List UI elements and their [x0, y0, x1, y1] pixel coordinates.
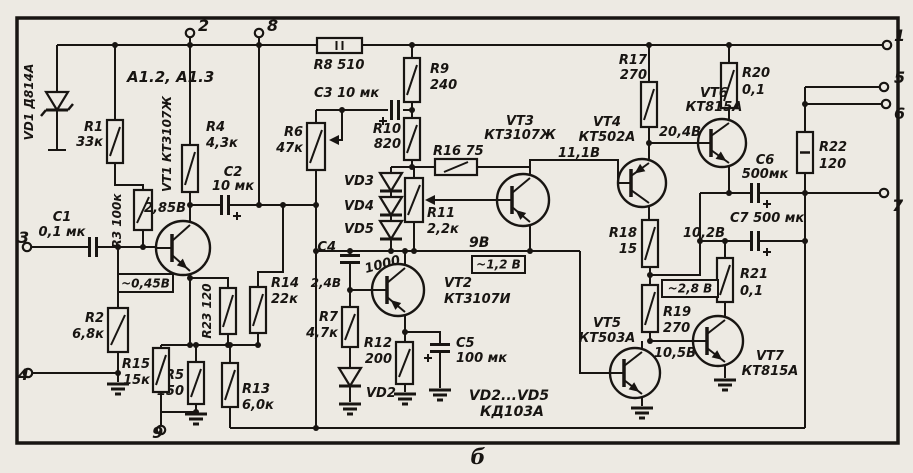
resistor-label: R9	[430, 62, 449, 77]
annotation-text: R3 100к	[110, 193, 124, 249]
capacitor-label: C1	[53, 210, 72, 225]
resistor-label: 2,2к	[427, 222, 460, 237]
resistor-R6: R647к	[275, 123, 325, 170]
transistor-VT7: VT7КТ815А	[693, 316, 798, 379]
junction-dot	[256, 42, 262, 48]
resistor-R13: R136,0к	[222, 363, 275, 413]
junction-dot	[647, 338, 653, 344]
diode-label: VD3	[344, 174, 374, 189]
circuit-diagram: R133кR26,8кR44,3кR5150R647кR74,7кR8 510R…	[0, 0, 913, 473]
transistor-VT3: VT3КТ3107Ж	[484, 114, 557, 226]
terminal-number: 1	[894, 26, 905, 45]
transistor-label: VT3	[506, 114, 534, 129]
junction-dot	[347, 287, 353, 293]
junction-dot	[187, 275, 193, 281]
junction-dot	[388, 248, 394, 254]
terminal-1: 1	[883, 26, 905, 49]
capacitor-label: C4	[317, 240, 336, 255]
terminal-number: 8	[267, 16, 278, 35]
capacitor-label: C5	[456, 336, 475, 351]
resistor-R7: R74,7к	[305, 307, 358, 347]
resistor-R15: R1515к	[122, 348, 169, 392]
resistor-label: R12	[364, 336, 392, 351]
resistor-R1: R133к	[76, 120, 123, 163]
transistor-label: КТ502А	[579, 130, 636, 145]
annotation-text: VD1 Д814А	[22, 64, 36, 141]
junction-dot	[347, 248, 353, 254]
terminal-circle	[883, 41, 891, 49]
terminal-number: 7	[892, 196, 904, 215]
junction-dot	[409, 164, 415, 170]
capacitor-label: C7 500 мк	[730, 211, 805, 226]
resistor-R12: R12200	[364, 336, 413, 384]
diode-body	[380, 173, 402, 191]
resistor-label: R14	[271, 276, 299, 291]
resistor-label: 15к	[123, 373, 151, 388]
diode-VD3: VD3	[344, 173, 402, 191]
terminal-5: 5	[880, 68, 905, 91]
capacitor-C6: C6500мк	[742, 153, 790, 208]
junction-dot	[193, 342, 199, 348]
resistor-label: R4	[206, 120, 225, 135]
arrow-icon	[329, 135, 339, 145]
resistor-label: 33к	[76, 135, 104, 150]
voltage-box: ~1,2 В	[472, 256, 525, 273]
figure-caption: б	[462, 444, 494, 469]
junction-dot	[339, 107, 345, 113]
junction-dot	[115, 370, 121, 376]
diode-VD2: VD2	[339, 368, 396, 401]
transistor-label: VT2	[444, 276, 472, 291]
resistor-label: 4,7к	[305, 326, 339, 341]
transistor-label: VT5	[593, 316, 621, 331]
annotation-text: КД103А	[480, 404, 544, 420]
resistor-label: 47к	[275, 141, 304, 156]
resistor-label: R8 510	[314, 58, 365, 73]
junction-dot	[256, 202, 262, 208]
terminal-7: 7	[880, 189, 904, 215]
diode-body	[46, 92, 68, 110]
annotation-text: А1.2, А1.3	[126, 68, 214, 86]
resistor-R10: R10820	[373, 118, 420, 160]
junction-dot	[402, 329, 408, 335]
wire	[580, 251, 610, 373]
capacitor-label: 500мк	[742, 167, 790, 182]
capacitor-label: C6	[756, 153, 775, 168]
terminal-number: 3	[18, 228, 29, 247]
capacitor-C7: C7 500 мк	[730, 211, 805, 256]
junction-dot	[280, 202, 286, 208]
transistor-label: VT6	[700, 86, 728, 101]
annotation-text: 9В	[469, 235, 489, 251]
voltage-box: ~2,8 В	[662, 280, 718, 297]
ground-icon	[185, 414, 207, 424]
capacitor-label: 10 мк	[212, 179, 255, 194]
annotation-text: 2,4В	[311, 276, 341, 290]
resistor-label: R7	[319, 310, 339, 325]
junction-dot	[402, 248, 408, 254]
terminal-3: 3	[18, 228, 31, 251]
terminal-number: 4	[17, 365, 29, 384]
terminal-circle	[255, 29, 263, 37]
diode-body	[380, 197, 402, 215]
wire	[337, 110, 342, 140]
voltage-box-label: ~0,45В	[121, 277, 170, 291]
diode-body	[380, 221, 402, 239]
transistor-label: КТ815А	[742, 364, 799, 379]
ground-icon	[339, 404, 361, 414]
voltage-box: ~0,45В	[118, 274, 173, 292]
terminal-circle	[882, 100, 890, 108]
junction-dot	[227, 342, 233, 348]
resistor-label: 120	[819, 157, 846, 172]
junction-dot	[802, 101, 808, 107]
annotation-text: VT1 КТ3107Ж	[160, 96, 174, 192]
resistor-label: R18	[609, 226, 637, 241]
resistor-label: 820	[374, 137, 401, 152]
resistor-label: R17	[619, 53, 648, 68]
resistor-label: R20	[742, 66, 770, 81]
junction-dot	[112, 42, 118, 48]
resistor-body	[317, 38, 362, 53]
capacitor-C5: C5100 мк	[424, 336, 508, 366]
junction-dot	[527, 248, 533, 254]
transistor-label: VT7	[756, 349, 785, 364]
resistor-label: R16 75	[433, 144, 484, 159]
junction-dot	[409, 107, 415, 113]
resistor-R9: R9240	[404, 58, 457, 102]
annotation-text: R23 120	[200, 283, 214, 338]
transistor-VT1	[156, 221, 210, 275]
resistor-R17: R17270	[619, 53, 657, 127]
transistor-label: КТ503А	[579, 331, 636, 346]
terminal-circle	[186, 29, 194, 37]
resistor-label: 270	[663, 321, 690, 336]
ground-icon	[429, 390, 451, 400]
terminal-4: 4	[17, 365, 32, 384]
resistor-label: 15	[619, 242, 637, 257]
junction-dot	[187, 342, 193, 348]
diode-label: VD5	[344, 222, 374, 237]
terminal-6: 6	[882, 100, 905, 123]
terminal-number: 2	[198, 16, 209, 35]
resistor-label: 240	[430, 78, 457, 93]
resistor-label: 22к	[271, 292, 299, 307]
ground-icon	[631, 408, 653, 418]
annotation-text: 10,5В	[654, 346, 696, 361]
schematic-figure: R133кR26,8кR44,3кR5150R647кR74,7кR8 510R…	[0, 0, 913, 473]
resistor-label: 4,3к	[205, 136, 239, 151]
terminal-number: 6	[894, 104, 905, 123]
junction-dot	[187, 202, 193, 208]
resistor-label: 200	[365, 352, 392, 367]
terminal-number: 9	[152, 423, 163, 442]
resistor-R22: R22120	[797, 132, 847, 173]
junction-dot	[140, 244, 146, 250]
junction-dot	[726, 190, 732, 196]
resistor-label: R1	[84, 120, 103, 135]
terminal-circle	[880, 83, 888, 91]
ground-icon	[714, 380, 736, 390]
diode-label: VD2	[366, 386, 396, 401]
capacitor-label: 0,1 мк	[38, 225, 86, 240]
capacitor-label: 100 мк	[456, 351, 508, 366]
capacitor-C3: C3 10 мк	[314, 86, 399, 125]
transistor-label: VT4	[593, 115, 621, 130]
annotation-text: 10,2В	[683, 226, 725, 241]
resistor-label: R21	[740, 267, 768, 282]
capacitor-C2: C210 мк	[212, 165, 255, 220]
junction-dot	[411, 248, 417, 254]
resistor-label: 6,8к	[72, 327, 105, 342]
resistor-label: R10	[373, 122, 401, 137]
resistor-label: R2	[85, 311, 104, 326]
junction-dot	[802, 238, 808, 244]
transistor-label: КТ3107И	[444, 292, 511, 307]
junction-dot	[802, 190, 808, 196]
resistor-R2: R26,8к	[72, 308, 128, 352]
diode-label: VD4	[344, 199, 374, 214]
resistor-label: 0,1	[742, 83, 765, 98]
junction-dot	[646, 42, 652, 48]
junction-dot	[726, 42, 732, 48]
transistor-label: КТ815А	[686, 100, 743, 115]
resistor-label: R6	[284, 125, 303, 140]
resistor-label: 0,1	[740, 284, 763, 299]
terminal-9: 9	[152, 423, 165, 442]
voltage-box-label: ~1,2 В	[476, 258, 521, 272]
resistor-R16: R16 75	[433, 144, 484, 175]
resistor-R21: R210,1	[717, 258, 768, 302]
resistor-R23	[220, 288, 236, 334]
diode-VD4: VD4	[344, 197, 402, 215]
resistor-R8: R8 510	[314, 38, 365, 73]
resistor-label: R22	[819, 140, 847, 155]
wire	[258, 205, 283, 287]
annotation-text: 20,4В	[659, 125, 701, 140]
terminal-number: 5	[894, 68, 905, 87]
resistor-R18: R1815	[609, 220, 658, 267]
transistor-label: КТ3107Ж	[484, 128, 557, 143]
junction-dot	[255, 342, 261, 348]
capacitor-label: C2	[224, 165, 243, 180]
wire	[530, 160, 618, 183]
ground-icon	[394, 394, 416, 404]
arrow-icon	[425, 195, 435, 205]
junction-dot	[187, 42, 193, 48]
junction-dot	[647, 272, 653, 278]
diode-body	[339, 368, 361, 386]
resistor-label: 270	[620, 68, 647, 83]
capacitor-C1: C10,1 мк	[38, 210, 97, 259]
annotation-text: VD2...VD5	[469, 388, 550, 404]
resistor-label: R15	[122, 357, 150, 372]
resistor-label: R13	[242, 382, 270, 397]
junction-dot	[313, 425, 319, 431]
diode-VD5: VD5	[344, 221, 402, 239]
junction-dot	[313, 202, 319, 208]
resistor-label: 6,0к	[242, 398, 275, 413]
terminal-circle	[880, 189, 888, 197]
annotation-text: 2,85В	[144, 201, 186, 216]
resistor-label: R19	[663, 305, 691, 320]
annotation-text: 11,1В	[558, 146, 600, 161]
junction-dot	[409, 42, 415, 48]
resistor-label: R11	[427, 206, 455, 221]
junction-dot	[646, 140, 652, 146]
capacitor-label: C3 10 мк	[314, 86, 380, 101]
voltage-box-label: ~2,8 В	[668, 282, 713, 296]
